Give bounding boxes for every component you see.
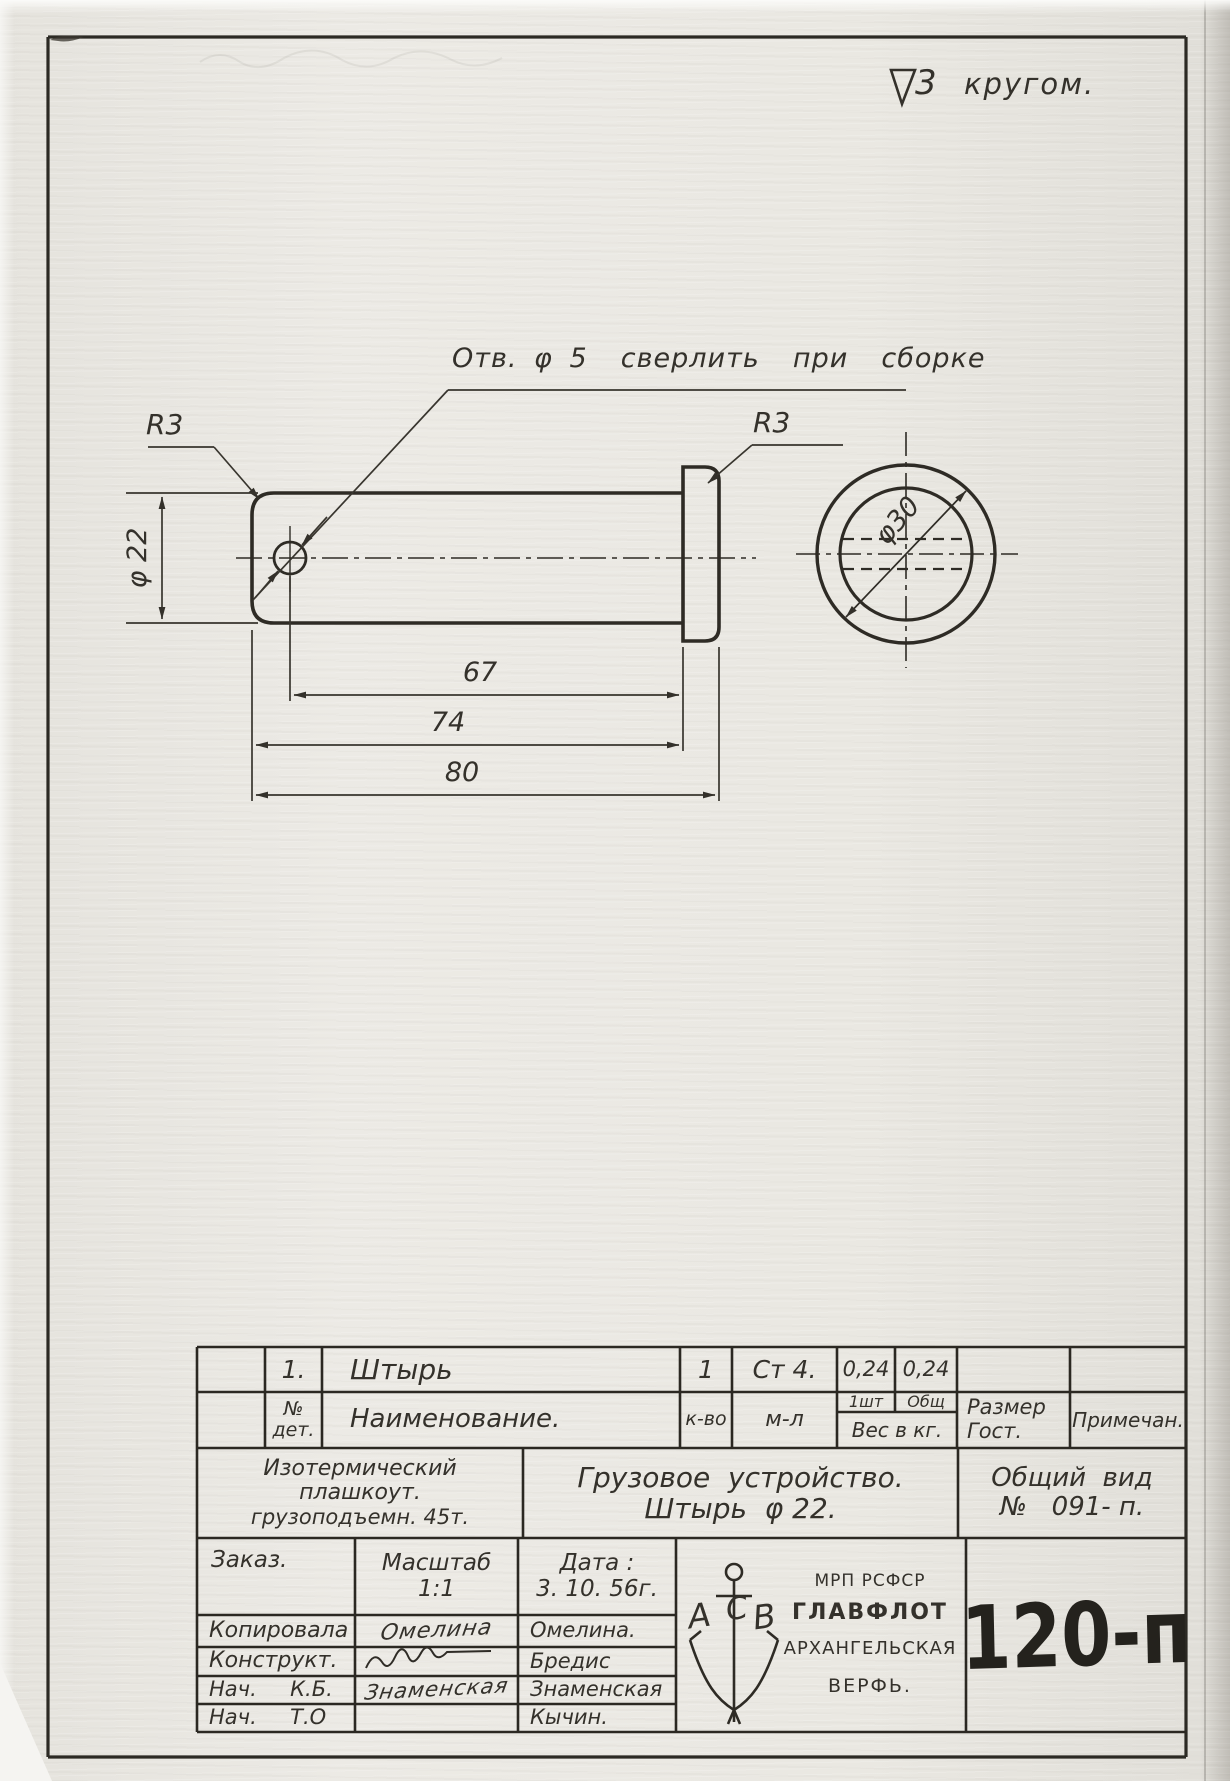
project-object-line1: Изотермический (263, 1457, 456, 1482)
part-material: Ст 4. (732, 1347, 837, 1392)
project-object-cell: Изотермический плашкоут. грузоподъемн. 4… (197, 1448, 523, 1538)
signoff-name-tech-head: Кычин. (518, 1704, 676, 1732)
finish-grade: 3 (915, 64, 937, 102)
scale-label: Масштаб (382, 1551, 491, 1577)
signoff-role-constructor: Конструкт. (197, 1647, 355, 1676)
header-no-line2: дет. (273, 1420, 315, 1441)
dim-80-label: 80 (430, 758, 494, 788)
header-size: Размер Гост. (957, 1392, 1070, 1448)
header-part-number: № дет. (265, 1392, 322, 1448)
header-name: Наименование. (322, 1392, 680, 1448)
header-weight: Вес в кг. (837, 1412, 957, 1448)
org-line-ministry: МРП РСФСР (788, 1572, 952, 1592)
header-note: Примечан. (1070, 1392, 1186, 1448)
project-title-cell: Грузовое устройство. Штырь φ 22. (523, 1448, 958, 1538)
hole-note: Отв. φ 5 сверлить при сборке (452, 344, 986, 374)
header-qty: к-во (680, 1392, 732, 1448)
project-view-line1: Общий вид (991, 1464, 1153, 1493)
r3-right-leader (708, 445, 752, 483)
signoff-role-copier: Копировала (197, 1615, 355, 1647)
r3-left-leader (214, 447, 259, 499)
part-weight-total: 0,24 (895, 1347, 957, 1392)
project-object-line2: плашкоут. (299, 1481, 421, 1506)
header-per-item: 1шт (837, 1392, 895, 1412)
constructor-signature-scribble (366, 1648, 491, 1669)
signoff-role-dept-head: Нач. К.Б. (197, 1676, 355, 1704)
project-title-line1: Грузовое устройство. (577, 1462, 903, 1493)
header-size-line1: Размер (967, 1396, 1070, 1420)
project-view-line2: № 091- п. (1000, 1493, 1144, 1522)
finish-scope: кругом. (964, 68, 1095, 100)
part-weight-each: 0,24 (837, 1347, 895, 1392)
project-object-line3: грузоподъемн. 45т. (251, 1506, 469, 1530)
org-line-city: АРХАНГЕЛЬСКАЯ (778, 1638, 962, 1660)
radius-label-left: R3 (146, 409, 183, 440)
org-line-verf: ВЕРФЬ. (788, 1676, 952, 1698)
dia-body-label: φ 22 (123, 498, 153, 618)
signoff-name-copier: Омелина. (518, 1615, 676, 1647)
logo-letter-a: А (686, 1597, 714, 1637)
part-qty: 1 (680, 1347, 732, 1392)
signoff-role-tech-head: Нач. Т.О (197, 1704, 355, 1732)
date-cell: Дата : 3. 10. 56г. (518, 1538, 676, 1615)
finish-mark-triangle (891, 70, 915, 104)
side-view (236, 467, 756, 641)
end-view (796, 432, 1018, 668)
logo-letter-s: С (724, 1591, 750, 1628)
dim-74-label: 74 (416, 708, 480, 738)
header-no-line1: № (284, 1399, 304, 1420)
hole-note-leader (253, 390, 448, 600)
order-label: Заказ. (197, 1538, 355, 1615)
signoff-name-constructor: Бредис (518, 1647, 676, 1676)
dimensions (126, 493, 719, 801)
drawing-sheet: 3 кругом. Отв. φ 5 сверлить при сборке R… (0, 0, 1230, 1781)
pin-head-outline (683, 467, 719, 641)
project-title-line2: Штырь φ 22. (644, 1493, 836, 1524)
header-size-line2: Гост. (967, 1420, 1070, 1444)
radius-label-right: R3 (753, 407, 790, 438)
date-value: 3. 10. 56г. (536, 1577, 658, 1603)
scale-value: 1:1 (418, 1577, 455, 1603)
signoff-name-dept-head: Знаменская (518, 1676, 676, 1704)
part-name: Штырь (322, 1347, 680, 1392)
scale-cell: Масштаб 1:1 (355, 1538, 518, 1615)
document-number: 120-п (964, 1523, 1189, 1747)
date-label: Дата : (560, 1551, 635, 1577)
header-overall: Общ (895, 1392, 957, 1412)
faint-pencil-marks (200, 50, 502, 67)
anchor-logo-icon (690, 1564, 778, 1724)
org-line-glavflot: ГЛАВФЛОТ (788, 1600, 952, 1626)
dim-67-label: 67 (448, 658, 512, 688)
header-material: м-л (732, 1392, 837, 1448)
part-number: 1. (265, 1347, 322, 1392)
